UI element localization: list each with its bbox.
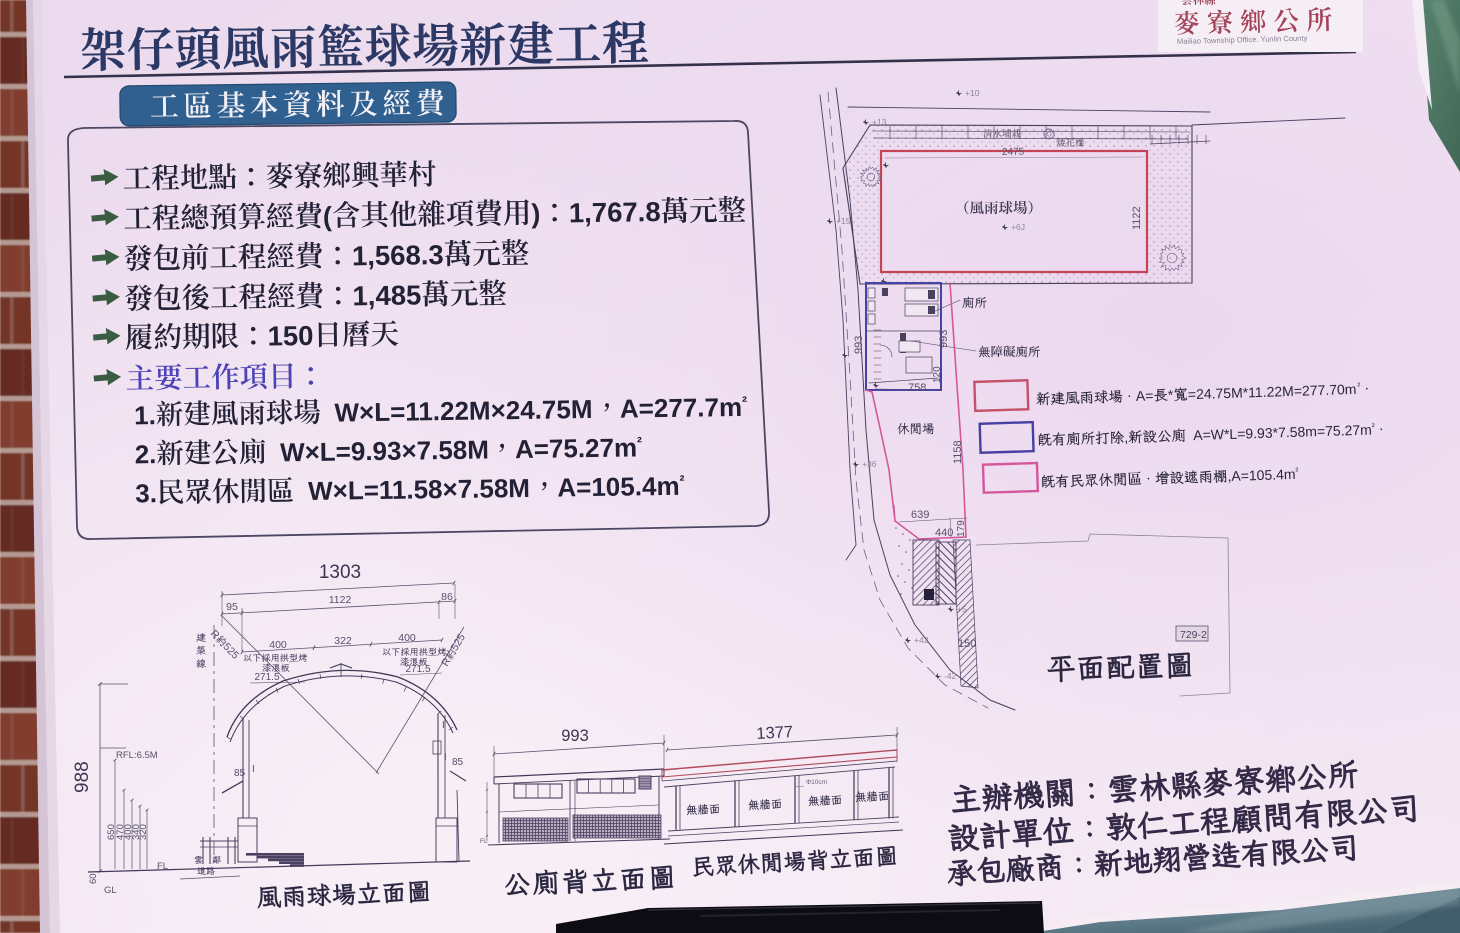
- svg-text:+36: +36: [862, 459, 877, 469]
- svg-text:1303: 1303: [319, 562, 361, 583]
- svg-text:²: ²: [1372, 421, 1375, 431]
- svg-text:A=75.27: A=75.27: [515, 433, 614, 464]
- svg-text:400: 400: [269, 639, 287, 651]
- svg-text:1,485: 1,485: [352, 279, 421, 311]
- svg-text:988: 988: [72, 761, 93, 793]
- svg-text:639: 639: [911, 509, 929, 521]
- svg-text:1158: 1158: [952, 440, 964, 464]
- svg-text:I: I: [442, 720, 445, 731]
- svg-text:1122: 1122: [329, 594, 352, 606]
- svg-text:271.5: 271.5: [405, 664, 430, 675]
- svg-text:271.5: 271.5: [254, 672, 279, 683]
- svg-text:322: 322: [334, 635, 352, 647]
- svg-text:W×L=9.93×7.58M: W×L=9.93×7.58M: [280, 434, 489, 467]
- svg-text:+13: +13: [872, 117, 887, 127]
- svg-text:85: 85: [452, 757, 464, 768]
- svg-text:+6J: +6J: [1011, 222, 1025, 232]
- svg-text:): ): [531, 199, 540, 229]
- svg-text:993: 993: [853, 336, 865, 354]
- svg-text:2.: 2.: [134, 439, 156, 469]
- svg-text:W×L=11.58×7.58M: W×L=11.58×7.58M: [308, 473, 530, 506]
- svg-text:+10: +10: [965, 88, 980, 98]
- svg-text:,: ,: [1124, 429, 1128, 445]
- svg-text:1,767.8: 1,767.8: [569, 196, 661, 228]
- svg-text:729-2: 729-2: [1180, 629, 1207, 641]
- svg-text:120: 120: [932, 366, 943, 383]
- svg-text:3.: 3.: [135, 478, 157, 508]
- svg-text:1.: 1.: [134, 400, 156, 430]
- svg-text:I: I: [252, 764, 255, 775]
- svg-text:1122: 1122: [1131, 206, 1143, 230]
- svg-text:1,568.3: 1,568.3: [352, 239, 444, 271]
- svg-text:I: I: [444, 752, 447, 763]
- svg-text:m: m: [719, 392, 743, 422]
- svg-text:²: ²: [1357, 381, 1360, 391]
- svg-text:²: ²: [742, 394, 747, 411]
- svg-text:85: 85: [234, 768, 246, 779]
- svg-text:993: 993: [938, 330, 950, 348]
- svg-text:2475: 2475: [1002, 147, 1025, 158]
- svg-text:FL: FL: [480, 838, 488, 845]
- svg-text:m: m: [614, 432, 638, 462]
- svg-text:W×L=11.22M×24.75M: W×L=11.22M×24.75M: [334, 394, 592, 428]
- svg-text:-42: -42: [944, 671, 957, 681]
- svg-text:1: 1: [1078, 138, 1083, 148]
- svg-text:179: 179: [956, 520, 967, 537]
- svg-text:m: m: [656, 471, 680, 501]
- svg-text:1377: 1377: [756, 723, 794, 743]
- svg-text:A=277.7: A=277.7: [620, 392, 719, 423]
- svg-text:86: 86: [441, 591, 453, 603]
- svg-text:95: 95: [226, 601, 238, 613]
- svg-text:A=: A=: [1136, 387, 1154, 404]
- svg-text:400: 400: [398, 632, 416, 644]
- svg-text:RFL:6.5M: RFL:6.5M: [116, 750, 158, 761]
- svg-text:(: (: [323, 202, 332, 232]
- svg-text:993: 993: [561, 727, 589, 745]
- svg-text:Φ10cm: Φ10cm: [806, 779, 827, 786]
- svg-text:320: 320: [138, 824, 149, 840]
- svg-text:758: 758: [908, 382, 926, 394]
- svg-text:*: *: [1168, 387, 1174, 403]
- svg-text:150: 150: [267, 320, 313, 352]
- svg-text:+42: +42: [914, 635, 929, 645]
- svg-text:60: 60: [88, 873, 99, 884]
- svg-text:GL: GL: [104, 885, 117, 896]
- svg-text:+15: +15: [836, 216, 851, 226]
- svg-text:,A=105.4m: ,A=105.4m: [1227, 466, 1296, 484]
- svg-text:A=105.4: A=105.4: [557, 471, 657, 502]
- svg-text:²: ²: [1295, 466, 1298, 476]
- svg-text:²: ²: [679, 473, 684, 490]
- svg-text:²: ²: [637, 434, 642, 451]
